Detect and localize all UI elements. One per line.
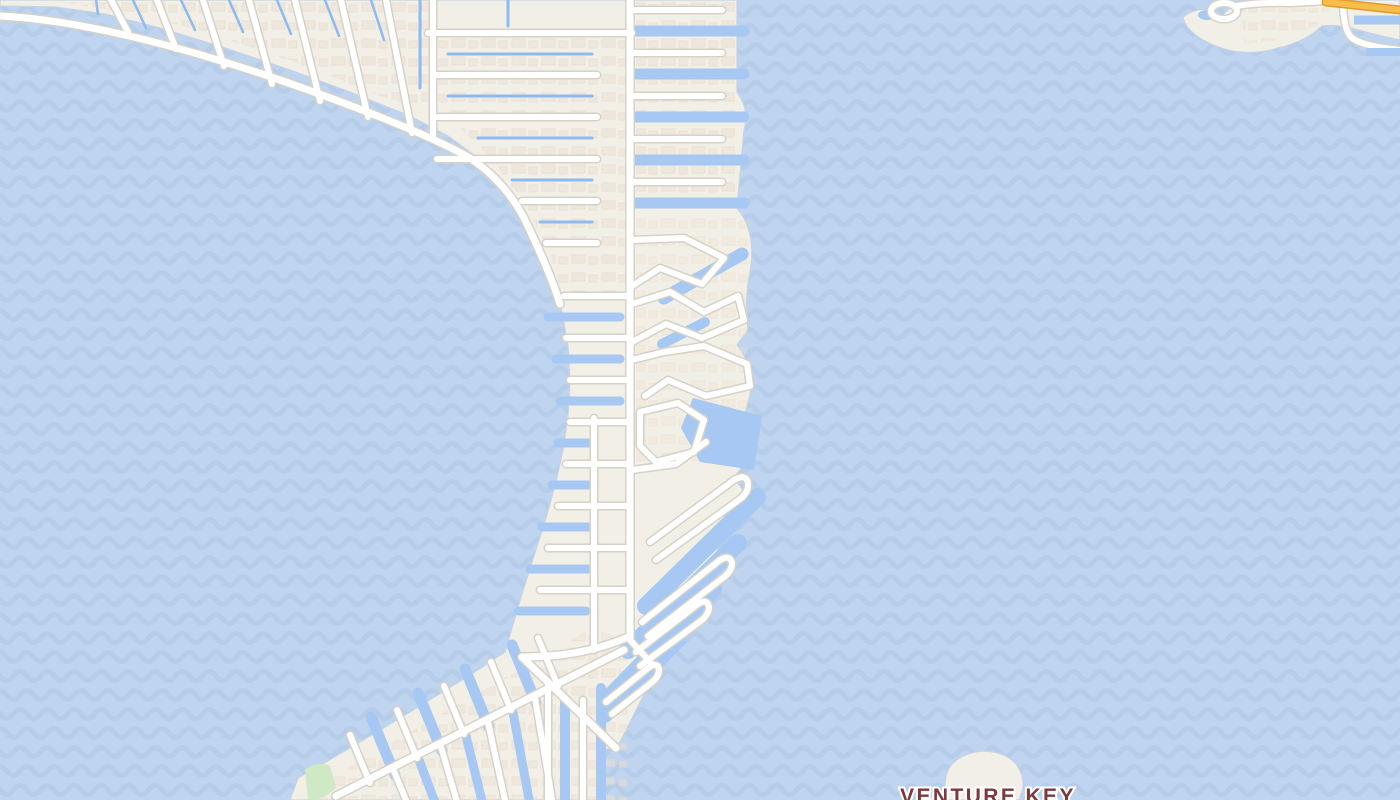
map-canvas[interactable]: VENTURE KEY — [0, 0, 1400, 800]
place-label-venture-key: VENTURE KEY — [900, 785, 1076, 800]
map-viewport[interactable]: VENTURE KEY — [0, 0, 1400, 800]
